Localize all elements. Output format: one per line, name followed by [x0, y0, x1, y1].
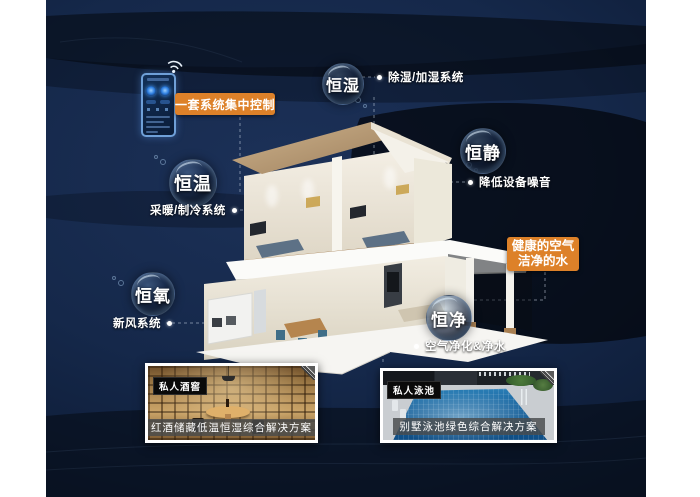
highlight-line2: 洁净的水 — [518, 254, 568, 269]
living-tv — [387, 272, 399, 292]
connector-dot — [414, 344, 419, 349]
label-heating-cooling-system: 采暖/制冷系统 — [150, 203, 237, 217]
label-text: 降低设备噪音 — [479, 174, 551, 190]
panel-row-3 — [146, 126, 170, 128]
badge-text: 私人泳池 — [393, 387, 435, 397]
fridge — [254, 289, 266, 334]
bubble-label: 恒温 — [174, 170, 212, 196]
pendant-lamp — [222, 376, 235, 381]
bubble-constant-quiet: 恒静 — [460, 128, 506, 174]
panel-button-left — [146, 100, 156, 104]
connector-dot — [377, 75, 382, 80]
bedroom-art — [306, 196, 320, 208]
panel-row-4 — [146, 131, 158, 133]
wine-cellar-card: 私人酒窖 红酒储藏低温恒湿综合解决方案 — [145, 363, 318, 443]
bubble-constant-temperature: 恒温 — [169, 159, 217, 207]
panel-button-right — [160, 100, 170, 104]
connector-dot — [468, 180, 473, 185]
healthy-air-water-callout: 健康的空气 洁净的水 — [507, 237, 579, 271]
label-noise-reduction: 降低设备噪音 — [468, 175, 551, 189]
bubble-constant-clean: 恒净 — [426, 295, 472, 341]
panel-row-2 — [146, 121, 164, 123]
caption-text: 红酒储藏低温恒湿综合解决方案 — [151, 423, 312, 434]
panel-icon-2 — [156, 108, 159, 111]
caption-text: 别墅泳池绿色综合解决方案 — [400, 422, 538, 433]
badge-text: 私人酒窖 — [159, 383, 201, 393]
bubble-label: 恒湿 — [326, 72, 360, 96]
bubble-constant-oxygen: 恒氧 — [131, 272, 175, 316]
label-text: 新风系统 — [113, 315, 161, 331]
pool-card-badge: 私人泳池 — [387, 381, 441, 399]
connector-dot — [232, 208, 237, 213]
wine-card-badge: 私人酒窖 — [153, 377, 207, 395]
wine-card-caption: 红酒储藏低温恒湿综合解决方案 — [148, 419, 315, 436]
panel-screen-header — [147, 78, 169, 81]
central-control-label: 一套系统集中控制 — [175, 96, 275, 113]
label-fresh-air-system: 新风系统 — [113, 316, 172, 330]
bubble-label: 恒净 — [431, 306, 467, 331]
label-dehumidify-system: 除湿/加湿系统 — [377, 70, 464, 84]
pool-photo: 私人泳池 别墅泳池绿色综合解决方案 — [383, 371, 554, 440]
wine-cellar-photo: 私人酒窖 红酒储藏低温恒湿综合解决方案 — [148, 366, 315, 440]
panel-row-1 — [146, 116, 170, 118]
panel-knob-right — [160, 86, 170, 96]
bubble-constant-humidity: 恒湿 — [322, 63, 364, 105]
porch-column-2 — [506, 264, 514, 334]
panel-icon-3 — [165, 108, 168, 111]
upper-divider-wall — [332, 156, 342, 258]
highlight-line1: 健康的空气 — [512, 239, 575, 254]
kitchen-appliance — [226, 316, 236, 325]
bubble-label: 恒氧 — [135, 282, 171, 307]
pool-card-caption: 别墅泳池绿色综合解决方案 — [393, 418, 545, 435]
label-air-water-purification: 空气净化&净水 — [414, 339, 506, 353]
pool-card: 私人泳池 别墅泳池绿色综合解决方案 — [380, 368, 557, 443]
bubble-label: 恒静 — [465, 139, 501, 164]
pool-card-corner-fold — [540, 371, 554, 385]
wine-card-corner-fold — [301, 366, 315, 380]
kitchen-oven — [212, 318, 222, 327]
upper-right-wall — [414, 158, 452, 250]
dining-chair-1 — [276, 330, 285, 340]
panel-knob-left — [146, 86, 156, 96]
central-control-callout: 一套系统集中控制 — [175, 93, 275, 115]
label-text: 空气净化&净水 — [425, 338, 506, 354]
pool-lounger-1 — [392, 400, 398, 411]
pool-ladder — [521, 389, 527, 405]
pool-plants-1 — [506, 375, 536, 386]
label-text: 采暖/制冷系统 — [150, 202, 226, 218]
wifi-icon — [161, 52, 189, 79]
infographic-canvas: 一套系统集中控制 健康的空气 洁净的水 恒湿 恒静 恒温 恒氧 恒净 除湿/加湿… — [0, 0, 700, 497]
pendant-cord — [228, 366, 229, 376]
control-panel-device — [141, 73, 176, 137]
label-text: 除湿/加湿系统 — [388, 69, 464, 85]
panel-icon-1 — [147, 108, 150, 111]
wine-bottle — [226, 399, 229, 407]
connector-dot — [167, 321, 172, 326]
